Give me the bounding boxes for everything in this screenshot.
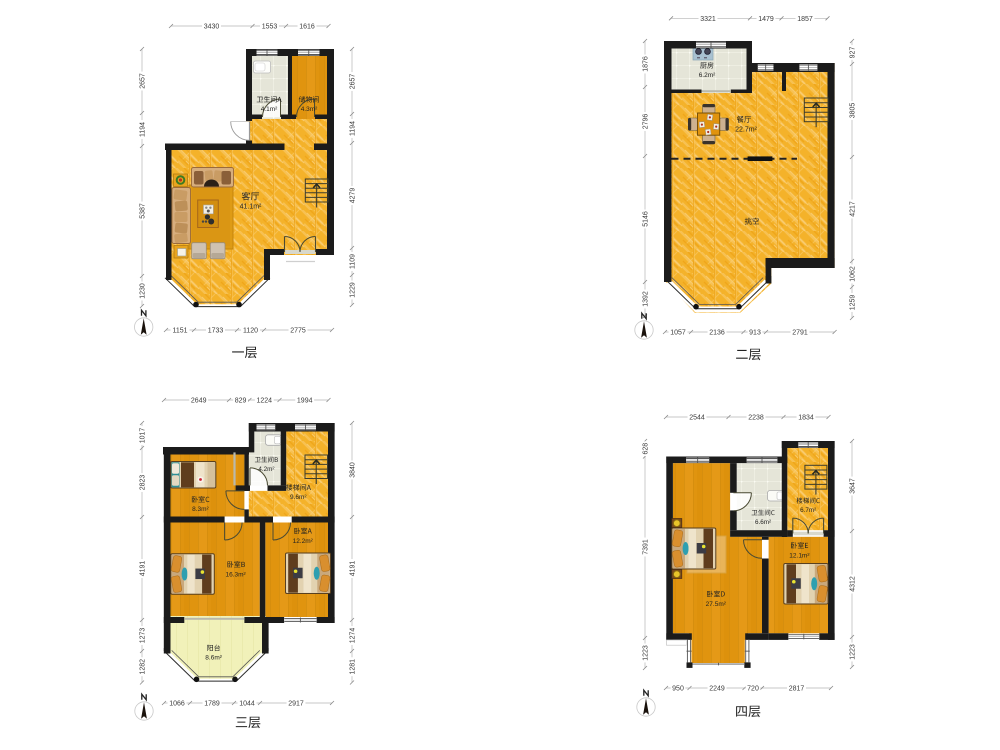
- svg-text:1273: 1273: [140, 628, 147, 644]
- svg-text:4191: 4191: [350, 561, 357, 577]
- svg-text:1274: 1274: [350, 628, 357, 644]
- svg-text:1057: 1057: [670, 330, 686, 337]
- svg-text:2796: 2796: [643, 114, 650, 130]
- svg-text:4312: 4312: [850, 576, 857, 592]
- svg-text:1479: 1479: [758, 16, 774, 23]
- svg-text:4217: 4217: [850, 201, 857, 217]
- svg-text:4.1m²: 4.1m²: [261, 106, 278, 113]
- svg-text:2657: 2657: [140, 73, 147, 89]
- svg-text:1120: 1120: [243, 328, 258, 335]
- svg-text:9.6m²: 9.6m²: [290, 494, 307, 501]
- svg-text:1392: 1392: [643, 291, 650, 307]
- svg-text:1259: 1259: [850, 295, 857, 311]
- svg-text:1553: 1553: [262, 24, 278, 31]
- svg-text:1224: 1224: [257, 398, 273, 405]
- svg-text:22.7m²: 22.7m²: [735, 127, 757, 134]
- svg-text:3647: 3647: [850, 478, 857, 494]
- svg-text:628: 628: [643, 443, 650, 455]
- svg-text:4.2m²: 4.2m²: [258, 466, 274, 473]
- svg-text:6.2m²: 6.2m²: [699, 72, 716, 79]
- svg-text:12.1m²: 12.1m²: [789, 553, 810, 560]
- svg-text:1616: 1616: [299, 24, 315, 31]
- svg-text:1223: 1223: [643, 645, 650, 661]
- svg-text:950: 950: [672, 686, 684, 693]
- svg-text:5146: 5146: [643, 211, 650, 227]
- svg-text:1789: 1789: [204, 701, 220, 708]
- svg-text:1994: 1994: [297, 398, 313, 405]
- svg-text:3840: 3840: [350, 462, 357, 478]
- svg-text:1733: 1733: [208, 328, 224, 335]
- svg-text:16.3m²: 16.3m²: [225, 572, 246, 579]
- svg-text:2136: 2136: [709, 330, 725, 337]
- svg-text:8.3m²: 8.3m²: [192, 506, 209, 513]
- svg-text:1066: 1066: [169, 701, 185, 708]
- svg-text:2791: 2791: [792, 330, 808, 337]
- svg-text:913: 913: [749, 330, 761, 337]
- svg-text:41.1m²: 41.1m²: [240, 204, 262, 211]
- svg-text:1834: 1834: [798, 415, 814, 422]
- svg-text:2238: 2238: [748, 415, 764, 422]
- svg-text:1017: 1017: [140, 428, 147, 444]
- svg-text:3805: 3805: [850, 103, 857, 119]
- svg-text:27.5m²: 27.5m²: [706, 601, 727, 608]
- svg-text:2544: 2544: [689, 415, 705, 422]
- svg-text:5387: 5387: [140, 203, 147, 219]
- svg-text:1194: 1194: [350, 121, 357, 136]
- svg-text:720: 720: [747, 686, 759, 693]
- svg-text:1229: 1229: [350, 282, 357, 298]
- svg-text:829: 829: [235, 398, 247, 405]
- svg-text:3430: 3430: [204, 24, 220, 31]
- svg-text:1062: 1062: [850, 266, 857, 282]
- svg-text:3321: 3321: [700, 16, 716, 23]
- svg-text:1230: 1230: [140, 283, 147, 299]
- svg-text:927: 927: [850, 47, 857, 59]
- svg-text:1282: 1282: [140, 659, 147, 675]
- svg-text:1857: 1857: [797, 16, 813, 23]
- svg-text:4191: 4191: [140, 561, 147, 577]
- svg-text:1223: 1223: [850, 644, 857, 660]
- svg-text:7391: 7391: [643, 539, 650, 555]
- svg-text:4.3m²: 4.3m²: [301, 106, 318, 113]
- svg-text:2649: 2649: [191, 398, 207, 405]
- svg-text:6.7m²: 6.7m²: [800, 507, 816, 514]
- svg-text:1281: 1281: [350, 659, 357, 675]
- svg-text:2823: 2823: [140, 475, 147, 491]
- svg-text:12.2m²: 12.2m²: [293, 538, 314, 545]
- svg-text:2817: 2817: [789, 686, 805, 693]
- svg-text:1151: 1151: [172, 328, 187, 335]
- svg-text:1109: 1109: [350, 254, 357, 269]
- svg-text:1044: 1044: [239, 701, 255, 708]
- svg-text:2775: 2775: [290, 328, 306, 335]
- svg-text:2917: 2917: [288, 701, 304, 708]
- svg-text:1876: 1876: [643, 56, 650, 72]
- svg-text:8.6m²: 8.6m²: [205, 655, 222, 662]
- svg-text:2657: 2657: [350, 74, 357, 90]
- svg-text:2249: 2249: [709, 686, 725, 693]
- svg-text:1194: 1194: [140, 122, 147, 137]
- svg-text:4279: 4279: [350, 188, 357, 204]
- svg-text:6.6m²: 6.6m²: [755, 519, 771, 526]
